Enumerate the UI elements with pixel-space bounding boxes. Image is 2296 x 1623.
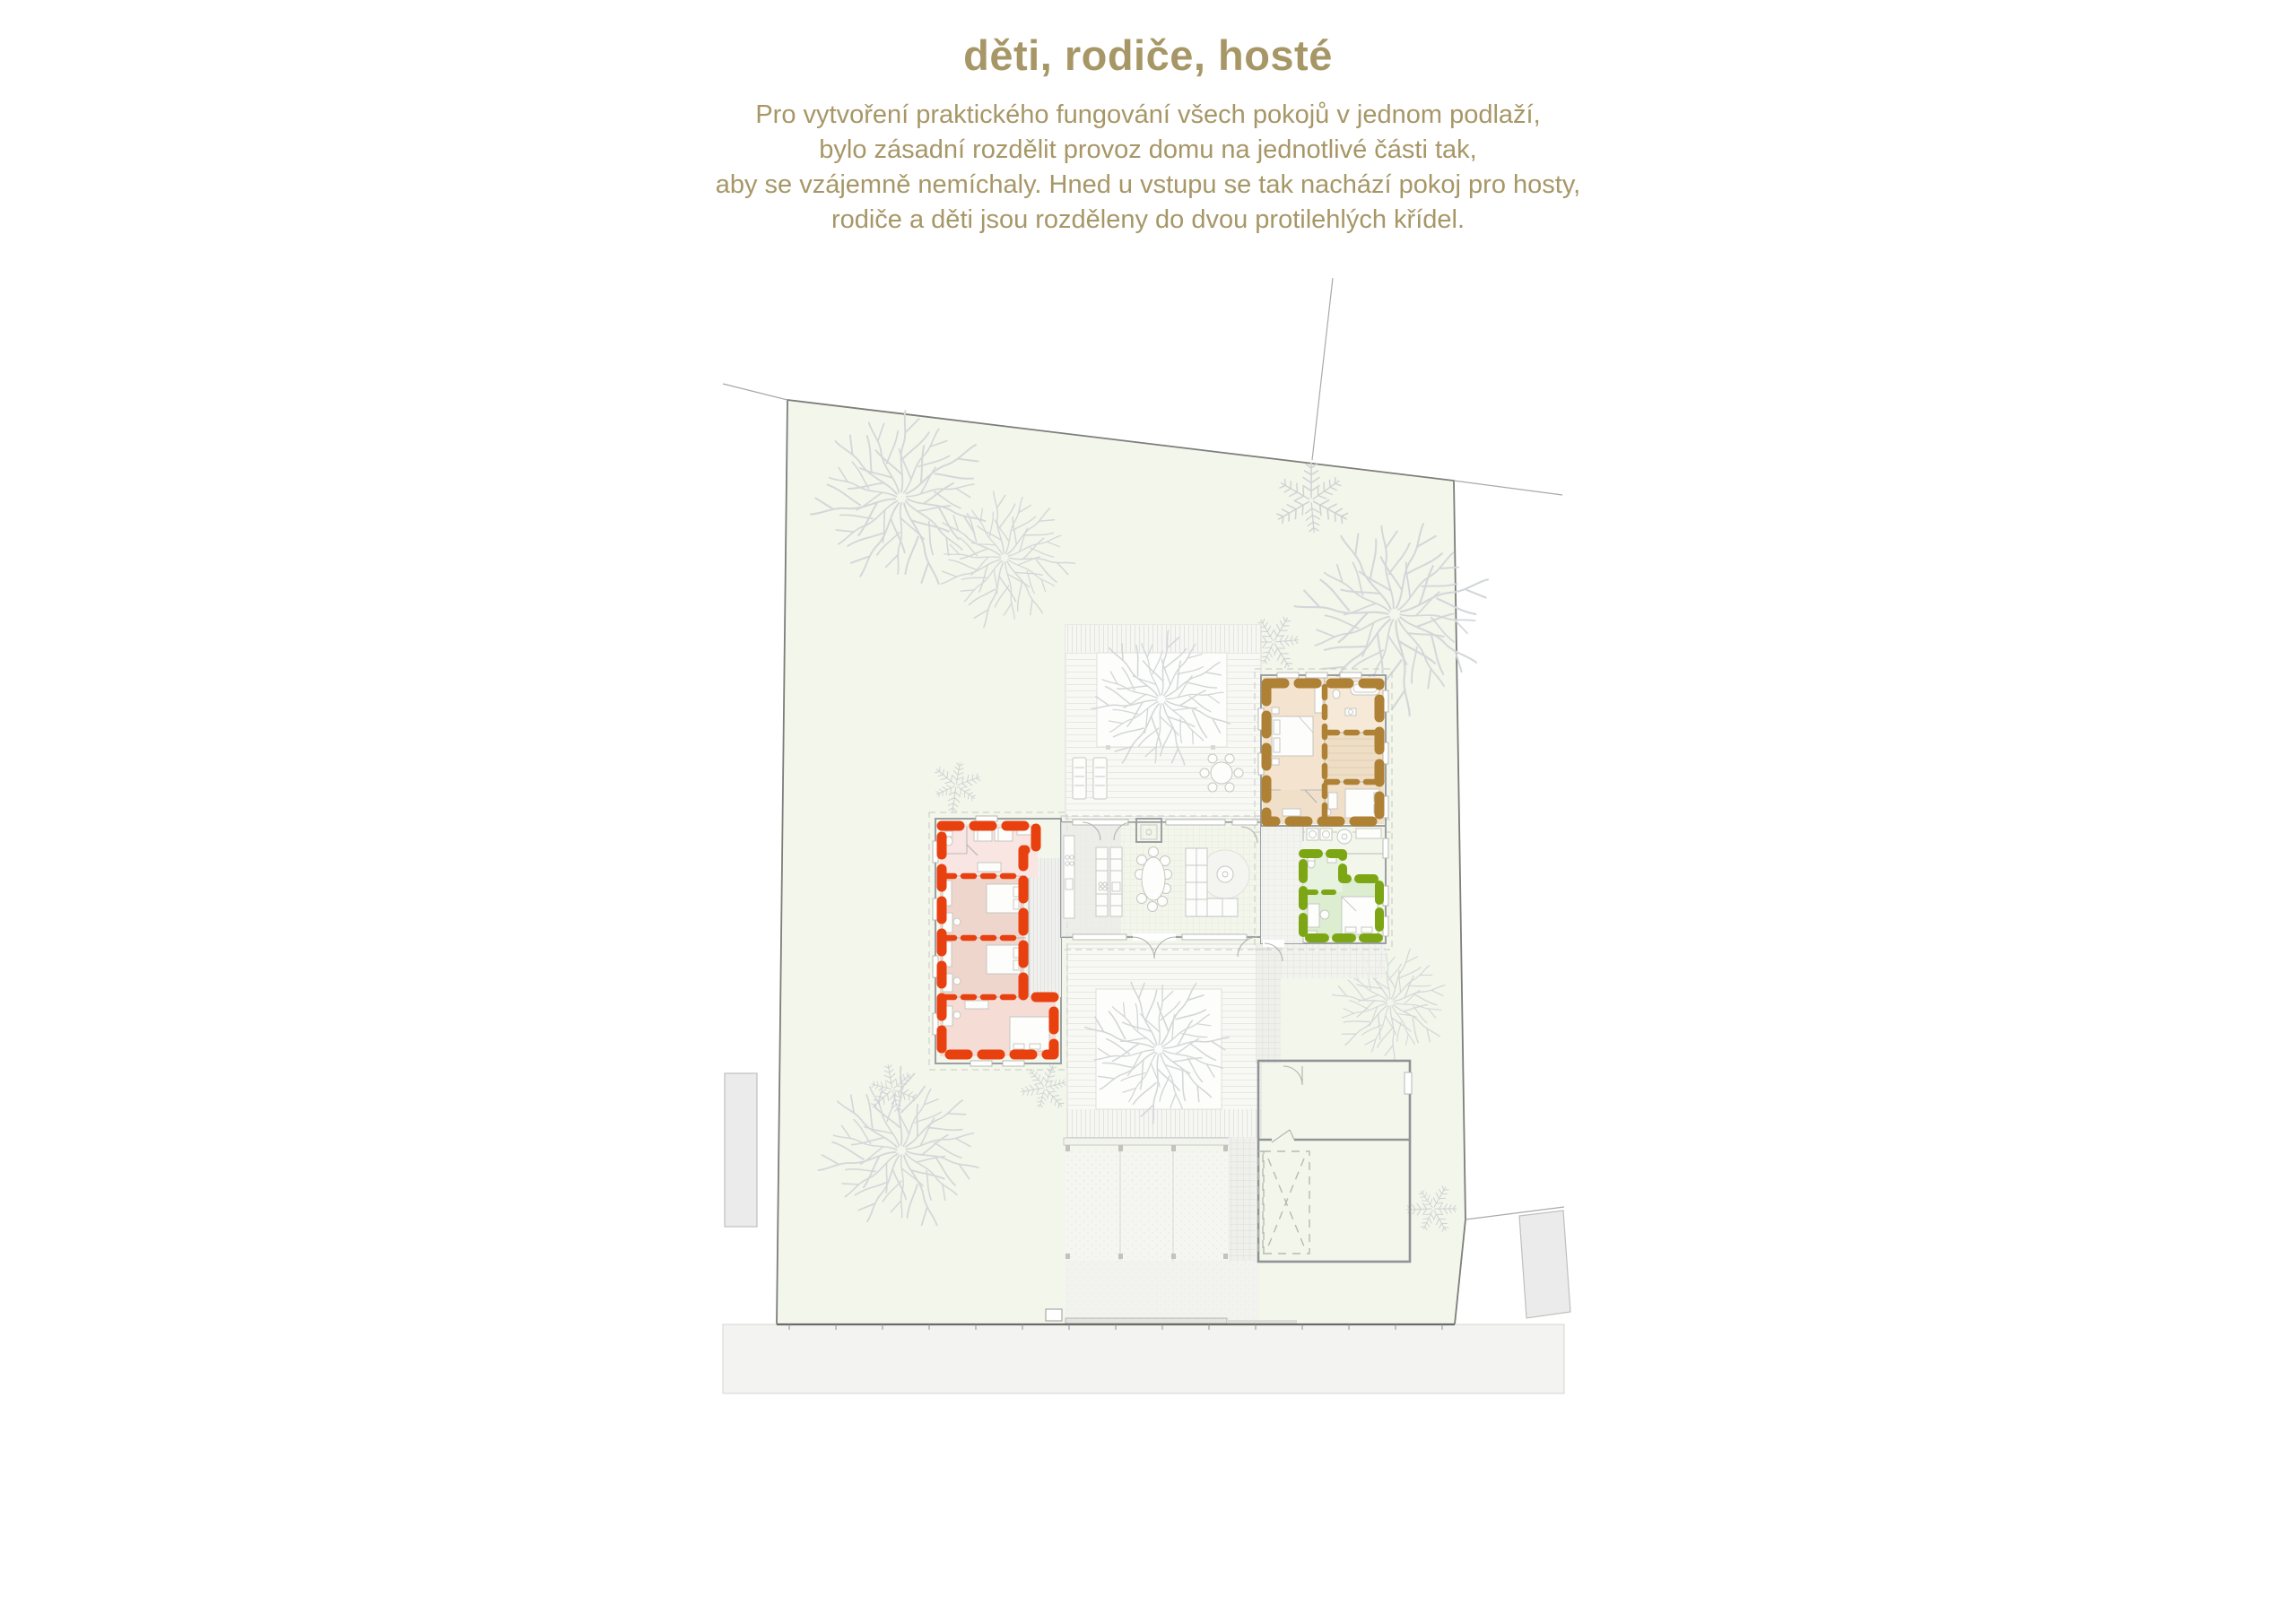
north-terrace bbox=[1054, 597, 1261, 819]
carport bbox=[1065, 1151, 1228, 1261]
road bbox=[723, 1324, 1564, 1393]
gate-post bbox=[1046, 1309, 1062, 1321]
south-terrace bbox=[1050, 938, 1264, 1151]
gate-bar bbox=[1065, 1318, 1227, 1324]
living-block bbox=[1061, 819, 1261, 959]
neighbor-building-left bbox=[725, 1073, 757, 1227]
dining-set bbox=[1135, 847, 1172, 912]
site-plan bbox=[0, 0, 2296, 1623]
planting-bed-north bbox=[1097, 653, 1227, 747]
neighbor-building-right bbox=[1519, 1211, 1570, 1318]
